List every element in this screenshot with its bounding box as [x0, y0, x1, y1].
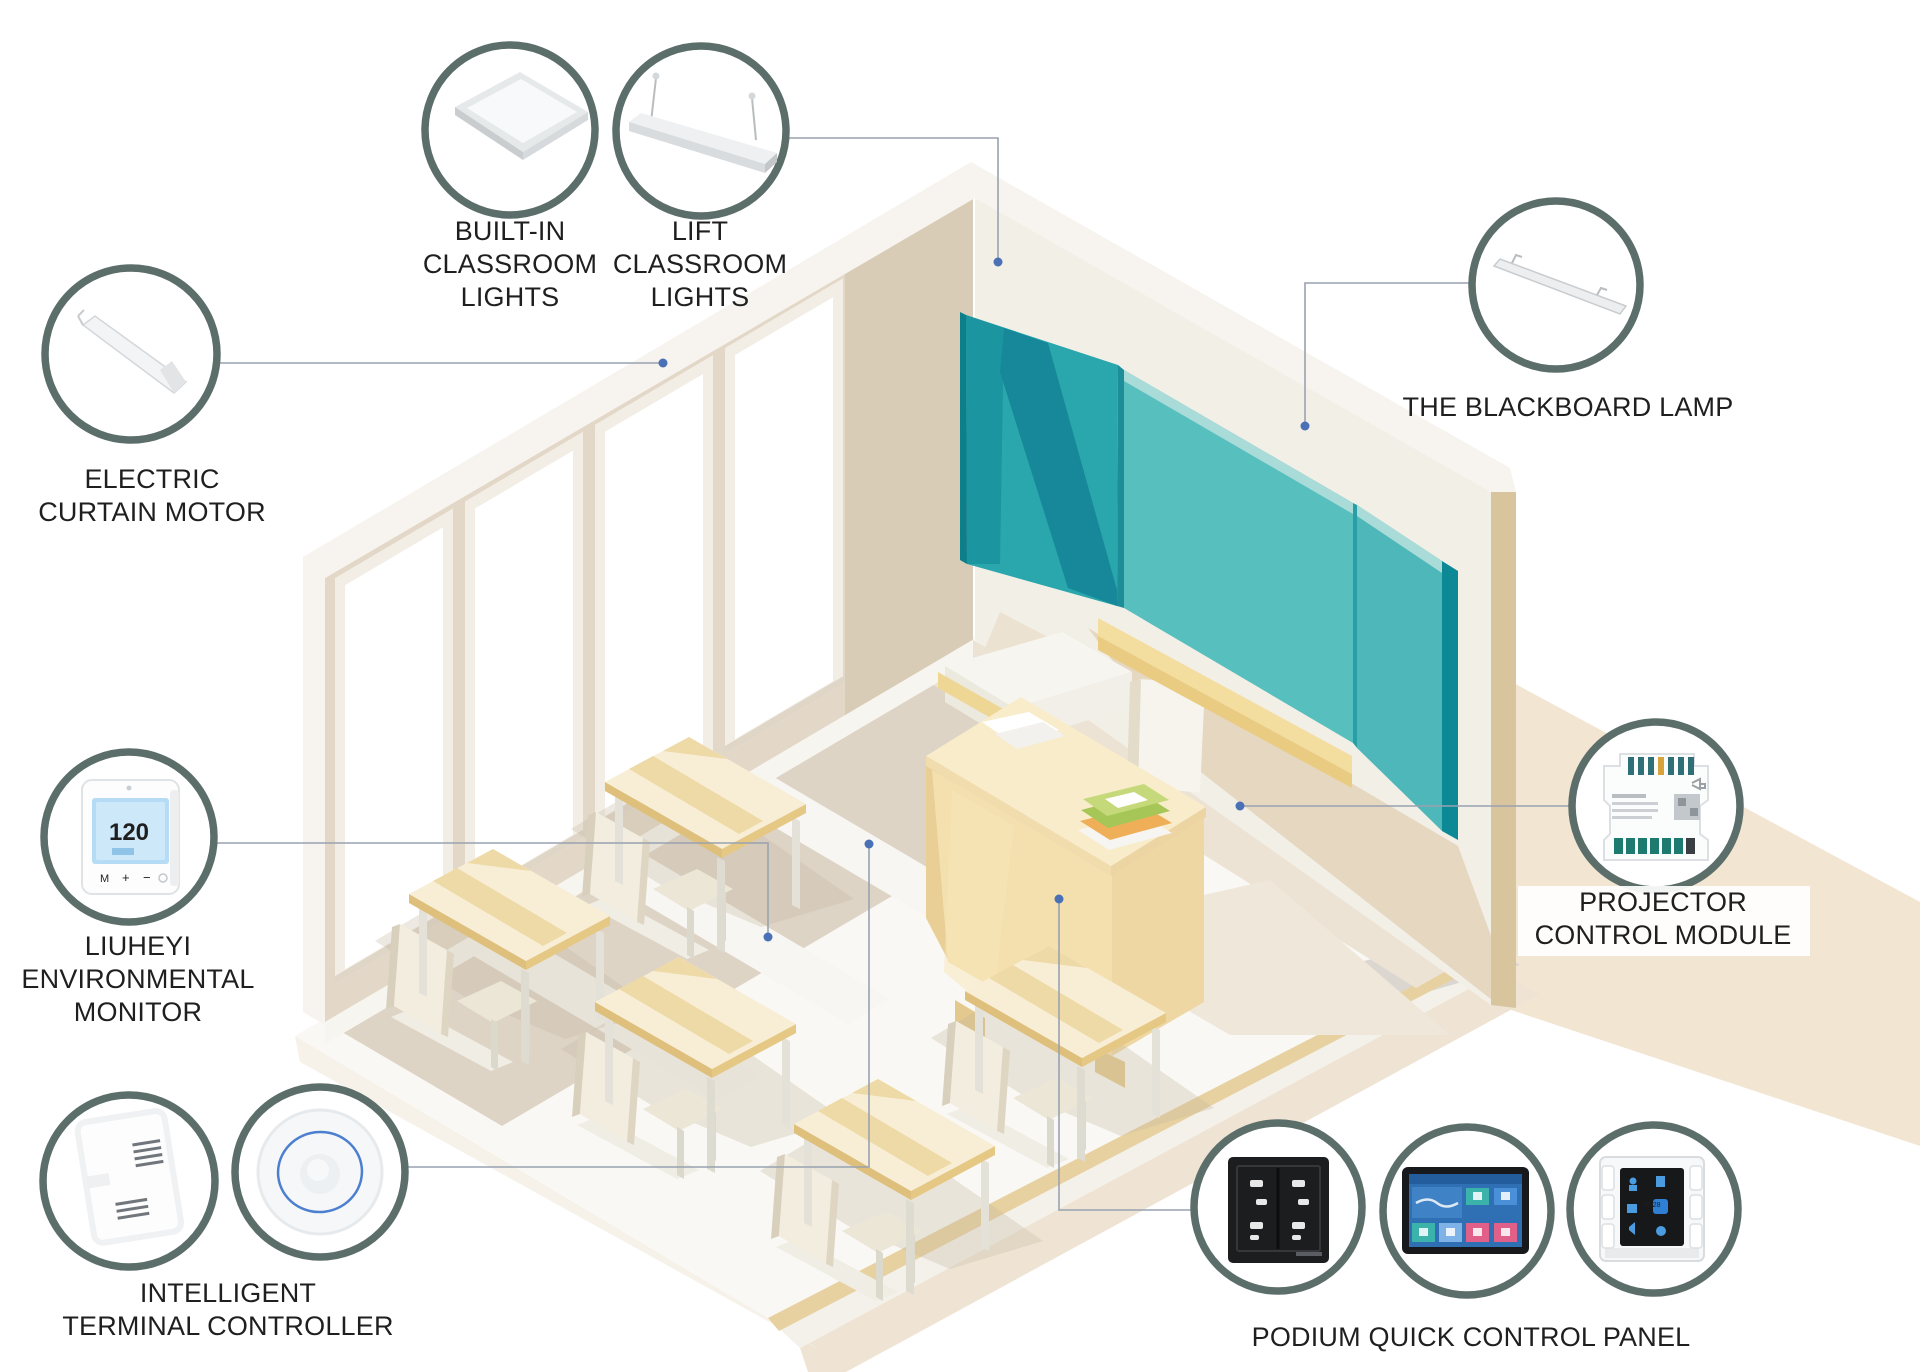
svg-text:88:28: 88:28 — [1643, 1202, 1661, 1209]
svg-text:PODIUM QUICK CONTROL PANEL: PODIUM QUICK CONTROL PANEL — [1252, 1322, 1691, 1352]
svg-text:INTELLIGENT: INTELLIGENT — [140, 1278, 316, 1308]
svg-text:LIUHEYI: LIUHEYI — [85, 931, 191, 961]
svg-text:−: − — [143, 870, 151, 885]
svg-text:ELECTRIC: ELECTRIC — [84, 464, 219, 494]
svg-text:BUILT-IN: BUILT-IN — [455, 216, 566, 246]
svg-text:CURTAIN MOTOR: CURTAIN MOTOR — [38, 497, 266, 527]
svg-text:PROJECTOR: PROJECTOR — [1579, 887, 1747, 917]
svg-text:MONITOR: MONITOR — [74, 997, 202, 1027]
svg-text:TERMINAL CONTROLLER: TERMINAL CONTROLLER — [62, 1311, 393, 1341]
svg-text:+: + — [122, 870, 130, 885]
svg-text:THE BLACKBOARD LAMP: THE BLACKBOARD LAMP — [1403, 392, 1734, 422]
svg-text:LIFT: LIFT — [672, 216, 728, 246]
svg-text:LIGHTS: LIGHTS — [461, 282, 560, 312]
svg-text:M: M — [100, 873, 109, 885]
svg-text:120: 120 — [109, 819, 149, 846]
svg-text:CONTROL MODULE: CONTROL MODULE — [1535, 920, 1792, 950]
svg-text:CLASSROOM: CLASSROOM — [613, 249, 787, 279]
svg-text:CLASSROOM: CLASSROOM — [423, 249, 597, 279]
svg-text:ENVIRONMENTAL: ENVIRONMENTAL — [21, 964, 254, 994]
svg-text:LIGHTS: LIGHTS — [651, 282, 750, 312]
